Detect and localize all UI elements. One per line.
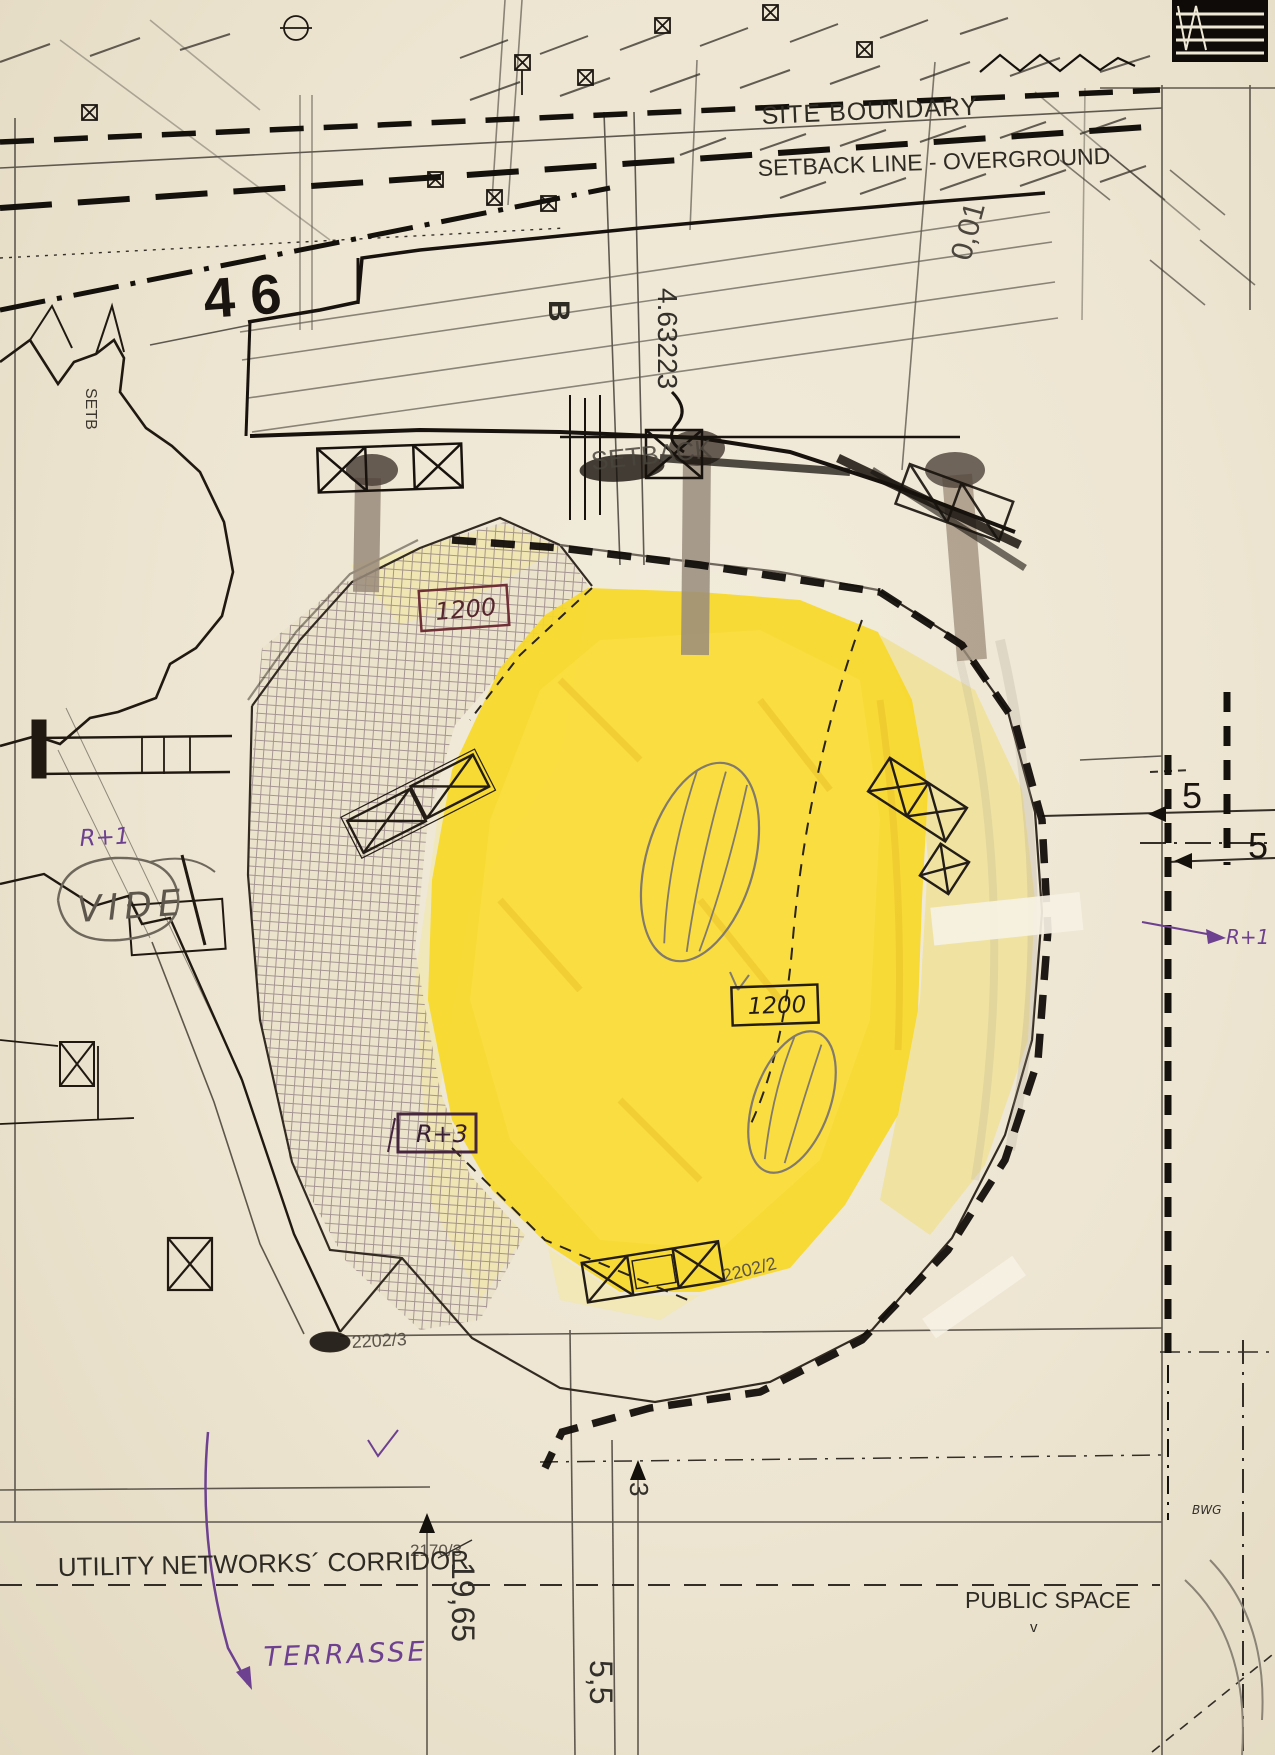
site-boundary-line	[0, 90, 1160, 142]
plan-drawing: SITE BOUNDARY SETBACK LINE - OVERGROUND …	[0, 0, 1275, 1755]
dim-001-label: 0,01	[945, 199, 992, 264]
box-r3-label: R+3	[416, 1120, 468, 1148]
letter-b-label: B	[542, 300, 575, 322]
bottom-right-arcs	[1185, 1560, 1263, 1755]
box-1200-mid-label: 1200	[747, 992, 806, 1020]
utility-corridor-label: UTILITY NETWORKS´ CORRIDOR	[58, 1545, 470, 1582]
five-right-label: 5	[1248, 825, 1268, 866]
parcel-46-label: 4 6	[201, 262, 283, 330]
setb-left-label: SETB	[82, 388, 99, 430]
yellow-building-footprint	[428, 588, 1035, 1320]
zigzag-line	[980, 55, 1135, 72]
bold-dashed-margins	[1168, 692, 1227, 1520]
dim-5-5-label: 5,5	[583, 1660, 619, 1704]
box-1200-top-label: 1200	[434, 593, 497, 626]
site-boundary-label: SITE BOUNDARY	[761, 93, 979, 130]
public-space-tick: v	[1030, 1619, 1038, 1636]
parcel-2202-3-label: 2202/3	[351, 1329, 407, 1352]
corner-title-block	[1172, 0, 1268, 62]
boundary-lines	[0, 90, 1160, 310]
terrasse-label: TERRASSE	[263, 1636, 428, 1673]
public-space-label: PUBLIC SPACE	[965, 1587, 1131, 1613]
vide-label: VIDE	[76, 882, 188, 931]
scanned-site-plan: SITE BOUNDARY SETBACK LINE - OVERGROUND …	[0, 0, 1275, 1755]
whiteout-streak-2	[922, 1256, 1026, 1339]
dim-3-label: 3	[624, 1482, 654, 1496]
survey-markers	[82, 5, 872, 211]
five-upper-label: 5	[1182, 775, 1202, 816]
axis-dashdot-line	[0, 188, 610, 310]
dim-19-65-label: 19,65	[445, 1562, 481, 1642]
dim-463223-label: 4.63223	[652, 288, 683, 389]
r1-right-label: R+1	[1226, 925, 1269, 949]
r1-left-label: R+1	[79, 823, 130, 852]
bwg-label: BWG	[1192, 1503, 1221, 1517]
